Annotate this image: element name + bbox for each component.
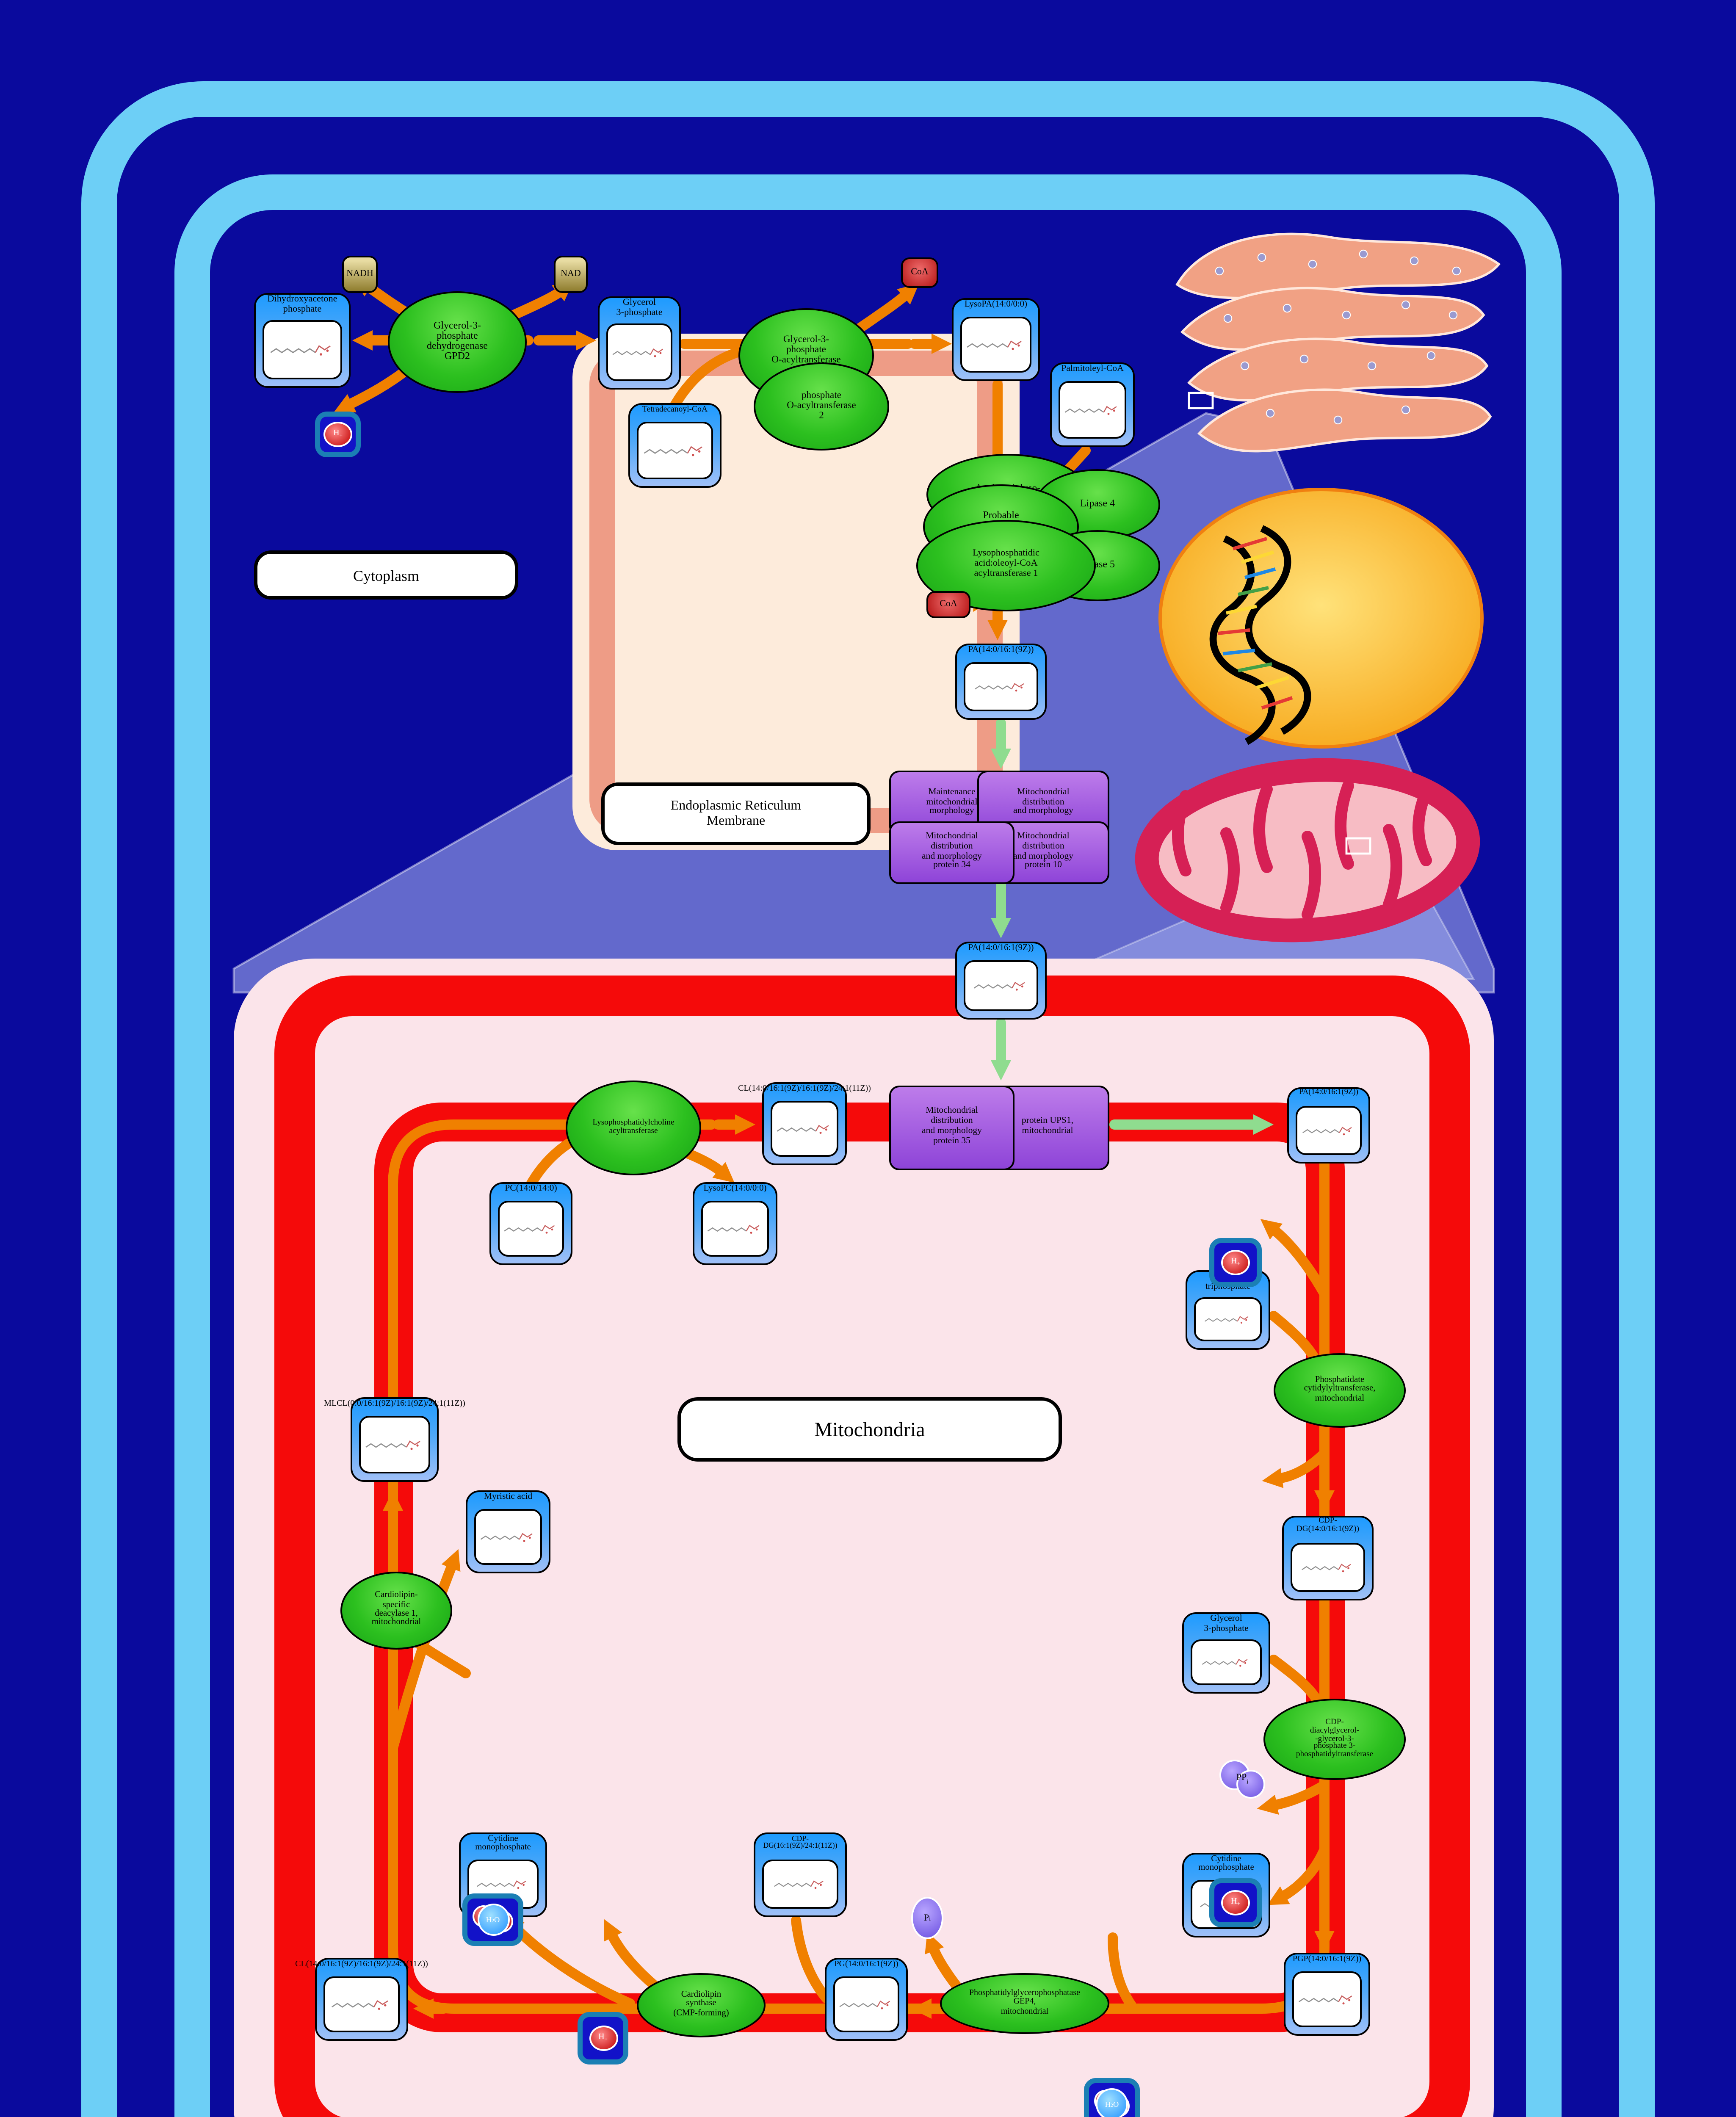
metabolite-cdp-dg-right-label: CDP- DG(14:0/16:1(9Z)) — [1284, 1519, 1372, 1536]
metabolite-cl-bottom[interactable]: CL(14:0/16:1(9Z)/16:1(9Z)/24:1(11Z)) — [315, 1958, 408, 2041]
metabolite-pa-ims[interactable]: PA(14:0/16:1(9Z)) — [955, 942, 1047, 1020]
enzyme-lpcat[interactable]: Lysophosphatidylcholine acyltransferase — [566, 1081, 701, 1175]
cofactor-h-plus-right-2[interactable]: H+ — [1209, 1878, 1262, 1927]
cofactor-h-plus-right-1-ion: H+ — [1221, 1250, 1250, 1275]
molecule-structure — [608, 325, 671, 379]
cofactor-h2o-right-molecule: H2O — [1096, 2088, 1128, 2117]
cytoplasm-label: Cytoplasm — [254, 550, 518, 600]
metabolite-cl-top-structure — [771, 1101, 838, 1157]
enzyme-cls-label: Cardiolipin synthase (CMP-forming) — [639, 1992, 764, 2019]
cofactor-coa-2[interactable]: CoA — [926, 591, 970, 618]
metabolite-lysopc-label: LysoPC(14:0/0:0) — [694, 1186, 776, 1194]
cofactor-coa-1[interactable]: CoA — [901, 257, 938, 288]
metabolite-lysopa-structure — [960, 317, 1031, 373]
molecule-structure — [835, 1978, 898, 2031]
metabolite-cmp-right-label: Cytidine monophosphate — [1184, 1856, 1269, 1874]
metabolite-tetradecanoyl-coa-label: Tetradecanoyl-CoA — [630, 406, 720, 415]
metabolite-dhap-label: Dihydroxyacetone phosphate — [256, 296, 349, 316]
metabolite-pa-ims-structure — [964, 960, 1038, 1011]
molecule-structure — [1060, 383, 1125, 437]
molecule-structure — [1196, 1299, 1260, 1340]
mitochondria-label-text: Mitochondria — [814, 1417, 925, 1442]
molecule-structure — [1192, 1641, 1260, 1683]
metabolite-g3p-cyto-structure — [606, 323, 672, 381]
metabolite-cl-bottom-label: CL(14:0/16:1(9Z)/16:1(9Z)/24:1(11Z)) — [295, 1961, 428, 1970]
cofactor-h-plus-cyto[interactable]: H+ — [315, 412, 361, 457]
metabolite-tetradecanoyl-coa[interactable]: Tetradecanoyl-CoA — [628, 403, 721, 488]
cytoplasm-label-text: Cytoplasm — [353, 567, 419, 583]
metabolite-pa-mito[interactable]: PA(14:0/16:1(9Z)) — [1287, 1087, 1370, 1164]
metabolite-myristic-acid-label: Myristic acid — [467, 1494, 549, 1503]
molecule-structure — [962, 318, 1030, 371]
metabolite-mlcl-label: MLCL(0:0/16:1(9Z)/16:1(9Z)/24:1(11Z)) — [324, 1401, 465, 1409]
enzyme-gpd2-label: Glycerol-3- phosphate dehydrogenase GPD2 — [390, 321, 525, 363]
metabolite-pgp-structure — [1292, 1971, 1362, 2027]
molecule-structure — [264, 322, 340, 378]
metabolite-pa-ims-label: PA(14:0/16:1(9Z)) — [957, 945, 1045, 954]
cofactor-h-plus-bottom[interactable]: H+ — [578, 2012, 628, 2064]
metabolite-g3p-mito[interactable]: Glycerol 3-phosphate — [1182, 1612, 1270, 1694]
metabolite-lysopc-structure — [701, 1201, 769, 1257]
metabolite-pgp-label: PGP(14:0/16:1(9Z)) — [1285, 1956, 1368, 1965]
enzyme-lpaat1-label: Lysophosphatidic acid:oleoyl-CoA acyltra… — [918, 551, 1094, 580]
metabolite-cdp-dg-bottom[interactable]: CDP- DG(16:1(9Z)/24:1(11Z)) — [754, 1832, 847, 1917]
metabolite-pa-er[interactable]: PA(14:0/16:1(9Z)) — [955, 644, 1047, 720]
metabolite-cdp-dg-bottom-structure — [762, 1860, 838, 1909]
metabolite-pg-structure — [833, 1976, 899, 2032]
enzyme-gep4-label: Phosphatidylglycerophosphatase GEP4, mit… — [942, 1990, 1108, 2017]
protein-mmm1-label: Maintenance mitochondrial morphology — [926, 789, 978, 818]
metabolite-palmitoleyl-coa-structure — [1059, 381, 1126, 439]
enzyme-lpcat-label: Lysophosphatidylcholine acyltransferase — [567, 1119, 699, 1136]
metabolite-dhap-structure — [263, 320, 342, 379]
enzyme-cld1[interactable]: Cardiolipin- specific deacylase 1, mitoc… — [340, 1572, 452, 1650]
cofactor-h-plus-cyto-ion: H+ — [323, 422, 352, 447]
metabolite-tetradecanoyl-coa-structure — [637, 422, 713, 479]
metabolite-lysopa-label: LysoPA(14:0/0:0) — [954, 301, 1038, 310]
cofactor-h-plus-right-2-ion: H+ — [1221, 1890, 1250, 1915]
metabolite-myristic-acid-structure — [474, 1509, 542, 1565]
metabolite-cdp-dg-right[interactable]: CDP- DG(14:0/16:1(9Z)) — [1282, 1516, 1374, 1600]
metabolite-palmitoleyl-coa-label: Palmitoleyl-CoA — [1052, 366, 1133, 375]
cofactor-nad[interactable]: NAD — [554, 256, 588, 293]
metabolite-pa-er-label: PA(14:0/16:1(9Z)) — [957, 647, 1045, 656]
enzyme-gpat2-label: phosphate O-acyltransferase 2 — [755, 391, 887, 422]
molecule-structure — [772, 1103, 837, 1155]
metabolite-cmp-left-label: Cytidine monophosphate — [461, 1836, 545, 1854]
metabolite-lysopc[interactable]: LysoPC(14:0/0:0) — [693, 1182, 777, 1265]
cofactor-h2o-left[interactable]: H2O — [462, 1893, 523, 1946]
molecule-structure — [1292, 1545, 1363, 1590]
metabolite-g3p-mito-label: Glycerol 3-phosphate — [1184, 1616, 1269, 1634]
cofactor-pi[interactable]: Pi — [911, 1897, 943, 1939]
molecule-structure — [361, 1418, 428, 1472]
molecule-structure — [500, 1202, 562, 1255]
metabolite-cl-top[interactable]: CL(14:0/16:1(9Z)/16:1(9Z)/24:1(11Z)) — [762, 1082, 847, 1165]
cofactor-h-plus-right-1[interactable]: H+ — [1209, 1238, 1262, 1287]
protein-ups1-label: protein UPS1, mitochondrial — [1022, 1118, 1073, 1138]
metabolite-dhap[interactable]: Dihydroxyacetone phosphate — [254, 293, 351, 388]
pathway-canvas: Dihydroxyacetone phosphateGlycerol 3-pho… — [0, 0, 1736, 2117]
protein-mdm35-label: Mitochondrial distribution and morpholog… — [922, 1108, 982, 1148]
protein-mdm-top-label: Mitochondrial distribution and morpholog… — [1013, 789, 1073, 818]
metabolite-pa-mito-structure — [1296, 1106, 1362, 1155]
cofactor-h-plus-bottom-ion: H+ — [589, 2026, 617, 2051]
enzyme-gep4[interactable]: Phosphatidylglycerophosphatase GEP4, mit… — [940, 1973, 1109, 2034]
metabolite-palmitoleyl-coa[interactable]: Palmitoleyl-CoA — [1050, 362, 1135, 447]
metabolite-pc[interactable]: PC(14:0/14:0) — [489, 1182, 572, 1265]
metabolite-pa-mito-label: PA(14:0/16:1(9Z)) — [1289, 1091, 1368, 1099]
metabolite-mlcl-structure — [359, 1416, 430, 1473]
metabolite-cdp-dg-right-structure — [1291, 1543, 1365, 1592]
metabolite-pgp[interactable]: PGP(14:0/16:1(9Z)) — [1284, 1953, 1370, 2036]
molecule-structure — [639, 423, 711, 478]
molecule-structure — [1297, 1108, 1360, 1153]
enzyme-gpd2[interactable]: Glycerol-3- phosphate dehydrogenase GPD2 — [388, 291, 527, 393]
metabolite-mlcl[interactable]: MLCL(0:0/16:1(9Z)/16:1(9Z)/24:1(11Z)) — [351, 1397, 439, 1482]
er-membrane-label: Endoplasmic Reticulum Membrane — [601, 782, 871, 845]
protein-mdm34[interactable]: Mitochondrial distribution and morpholog… — [889, 821, 1015, 884]
er-membrane-label-text: Endoplasmic Reticulum Membrane — [671, 799, 801, 829]
enzyme-pcyt-label: Phosphatidate cytidylyltransferase, mito… — [1275, 1377, 1404, 1404]
protein-mdm35[interactable]: Mitochondrial distribution and morpholog… — [889, 1086, 1015, 1170]
metabolite-g3p-mito-structure — [1191, 1639, 1262, 1685]
metabolite-myristic-acid[interactable]: Myristic acid — [466, 1490, 550, 1573]
metabolite-ctp-structure — [1194, 1297, 1262, 1341]
mitochondria-label: Mitochondria — [677, 1397, 1062, 1462]
cofactor-h2o-right[interactable]: H2O — [1084, 2078, 1140, 2117]
cofactor-h2o-left-molecule: H2O — [477, 1904, 509, 1936]
metabolite-cl-top-label: CL(14:0/16:1(9Z)/16:1(9Z)/24:1(11Z)) — [738, 1086, 871, 1094]
metabolite-pg[interactable]: PG(14:0/16:1(9Z)) — [825, 1958, 908, 2041]
metabolite-cl-bottom-structure — [323, 1976, 400, 2032]
molecule-structure — [965, 962, 1037, 1009]
metabolite-pa-er-structure — [964, 662, 1038, 711]
cofactor-nadh[interactable]: NADH — [342, 256, 378, 293]
molecule-structure — [703, 1202, 767, 1255]
enzyme-pcyt[interactable]: Phosphatidate cytidylyltransferase, mito… — [1274, 1353, 1406, 1428]
enzyme-cdgpt-label: CDP- diacylglycerol- -glycerol-3- phosph… — [1265, 1718, 1404, 1760]
metabolite-g3p-cyto-label: Glycerol 3-phosphate — [600, 300, 679, 319]
molecule-structure — [325, 1978, 398, 2031]
enzyme-cdgpt[interactable]: CDP- diacylglycerol- -glycerol-3- phosph… — [1263, 1699, 1406, 1780]
metabolite-cdp-dg-bottom-label: CDP- DG(16:1(9Z)/24:1(11Z)) — [755, 1836, 845, 1851]
enzyme-cls[interactable]: Cardiolipin synthase (CMP-forming) — [637, 1973, 766, 2037]
molecule-structure — [1294, 1973, 1360, 2026]
molecule-structure — [476, 1511, 540, 1563]
metabolite-lysopa[interactable]: LysoPA(14:0/0:0) — [952, 298, 1040, 381]
cofactor-ppi[interactable]: PPi — [1219, 1760, 1265, 1799]
protein-mdm34-label: Mitochondrial distribution and morpholog… — [922, 833, 982, 873]
enzyme-gpat2[interactable]: phosphate O-acyltransferase 2 — [754, 362, 889, 450]
metabolite-pc-label: PC(14:0/14:0) — [491, 1186, 571, 1195]
molecule-structure — [764, 1861, 837, 1907]
enzyme-cld1-label: Cardiolipin- specific deacylase 1, mitoc… — [342, 1592, 451, 1629]
metabolite-g3p-cyto[interactable]: Glycerol 3-phosphate — [598, 296, 681, 390]
molecule-structure — [965, 664, 1037, 710]
metabolite-pg-label: PG(14:0/16:1(9Z)) — [827, 1961, 906, 1970]
metabolite-pc-structure — [498, 1201, 564, 1257]
protein-mdm10-label: Mitochondrial distribution and morpholog… — [1013, 833, 1073, 873]
